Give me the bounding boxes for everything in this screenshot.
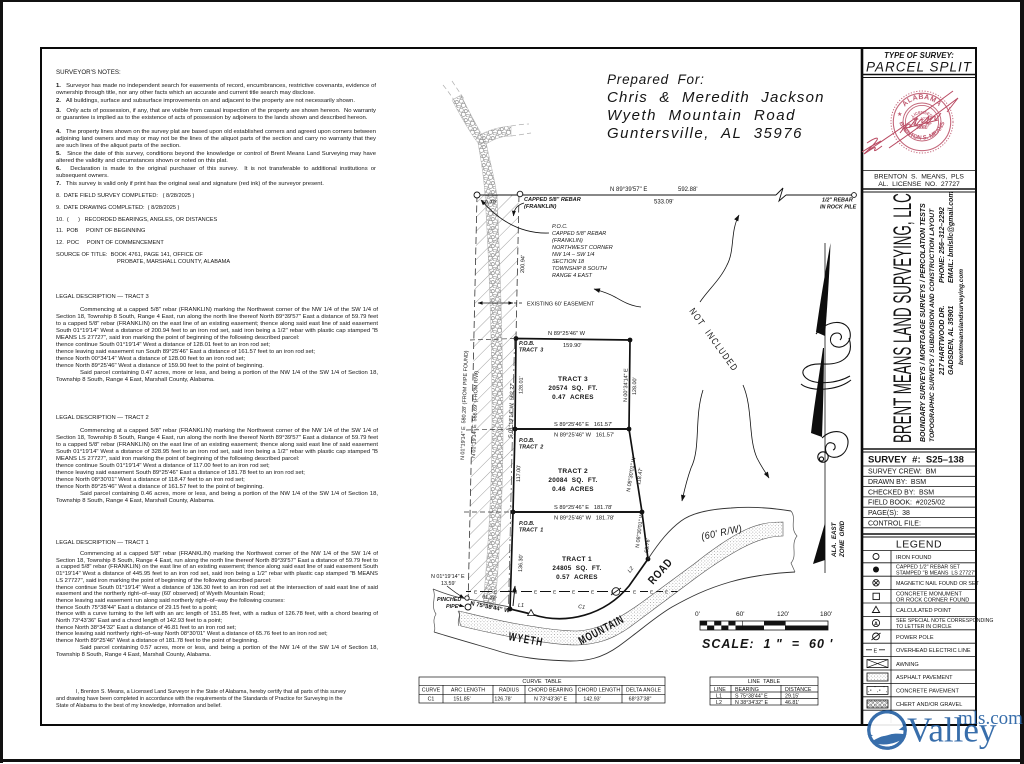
svg-text:592.88': 592.88' bbox=[678, 187, 698, 193]
svg-text:117.00': 117.00' bbox=[516, 465, 522, 482]
svg-text:BOUNDARY SURVEYS / MORTGAGE SU: BOUNDARY SURVEYS / MORTGAGE SURVEYS / PE… bbox=[920, 203, 927, 442]
svg-text:128.00': 128.00' bbox=[632, 377, 638, 395]
svg-text:TO LETTER IN CIRCLE: TO LETTER IN CIRCLE bbox=[896, 624, 952, 630]
svg-text:N 01°19'14" E: N 01°19'14" E bbox=[431, 574, 465, 580]
svg-text:E: E bbox=[494, 590, 497, 596]
svg-text:PARCEL SPLIT: PARCEL SPLIT bbox=[866, 60, 973, 75]
svg-text:46.81': 46.81' bbox=[785, 700, 799, 706]
svg-text:C1: C1 bbox=[428, 697, 435, 703]
svg-text:MAGNETIC NAIL FOUND OR SET: MAGNETIC NAIL FOUND OR SET bbox=[896, 581, 979, 587]
svg-text:TRACT 2: TRACT 2 bbox=[519, 445, 543, 451]
svg-text:68°37'38": 68°37'38" bbox=[629, 697, 652, 703]
svg-text:N 89°25'46" W: N 89°25'46" W bbox=[548, 331, 586, 337]
svg-text:SCALE: 1 " = 60 ': SCALE: 1 " = 60 ' bbox=[702, 637, 833, 651]
svg-text:29.15': 29.15' bbox=[785, 694, 799, 700]
svg-text:20574 SQ. FT.: 20574 SQ. FT. bbox=[548, 385, 597, 392]
svg-text:0.47 ACRES: 0.47 ACRES bbox=[552, 394, 594, 401]
svg-text:PIPE: PIPE bbox=[446, 604, 459, 610]
svg-text:EMAIL: bmlsllc@gmail.com: EMAIL: bmlsllc@gmail.com bbox=[948, 191, 955, 283]
svg-text:0.57 ACRES: 0.57 ACRES bbox=[556, 574, 598, 581]
svg-text:GADSDEN, AL 35901: GADSDEN, AL 35901 bbox=[948, 306, 955, 375]
svg-text:P.O.B.: P.O.B. bbox=[519, 521, 535, 527]
svg-text:PINCHED: PINCHED bbox=[437, 597, 461, 603]
svg-text:AL. LICENSE NO. 27727: AL. LICENSE NO. 27727 bbox=[878, 181, 960, 188]
svg-text:S 75°38'44" E: S 75°38'44" E bbox=[735, 694, 768, 700]
svg-text:P.O.C.: P.O.C. bbox=[552, 224, 568, 230]
svg-text:SECTION 18: SECTION 18 bbox=[552, 259, 585, 265]
svg-text:128.01': 128.01' bbox=[519, 376, 525, 394]
svg-text:L2: L2 bbox=[716, 700, 722, 706]
svg-text:533.09': 533.09' bbox=[654, 200, 674, 206]
svg-text:159.90': 159.90' bbox=[563, 343, 581, 349]
svg-text:N 00°34'14" E: N 00°34'14" E bbox=[623, 368, 630, 402]
svg-text:N 89°25'46" W 161.57': N 89°25'46" W 161.57' bbox=[554, 433, 614, 439]
svg-text:CURVE TABLE: CURVE TABLE bbox=[522, 679, 562, 685]
svg-text:65.76': 65.76' bbox=[644, 538, 652, 553]
svg-text:E: E bbox=[633, 590, 636, 596]
svg-text:(FRANKLIN): (FRANKLIN) bbox=[524, 204, 556, 210]
svg-text:TOWNSHIP 8 SOUTH: TOWNSHIP 8 SOUTH bbox=[552, 266, 607, 272]
svg-text:E: E bbox=[534, 590, 537, 596]
svg-text:BRENT MEANS LAND SURVEYING, LL: BRENT MEANS LAND SURVEYING, LLC bbox=[890, 193, 917, 443]
svg-text:NORTHWEST CORNER: NORTHWEST CORNER bbox=[552, 245, 613, 251]
svg-text:DELTA ANGLE: DELTA ANGLE bbox=[626, 688, 662, 694]
svg-text:DISTANCE: DISTANCE bbox=[785, 687, 812, 693]
svg-text:L1: L1 bbox=[518, 603, 524, 609]
svg-text:LINE: LINE bbox=[714, 687, 726, 693]
svg-text:126.78': 126.78' bbox=[494, 697, 511, 703]
svg-text:OVERHEAD ELECTRIC LINE: OVERHEAD ELECTRIC LINE bbox=[896, 648, 971, 654]
svg-text:0': 0' bbox=[695, 611, 700, 618]
svg-text:mls.com: mls.com bbox=[958, 708, 1023, 729]
svg-text:NW 1/4 – SW 1/4: NW 1/4 – SW 1/4 bbox=[552, 252, 595, 258]
svg-text:120': 120' bbox=[777, 611, 789, 618]
svg-text:IRON FOUND: IRON FOUND bbox=[896, 555, 931, 561]
svg-text:L1: L1 bbox=[716, 694, 722, 700]
svg-text:TRACT 3: TRACT 3 bbox=[519, 348, 543, 354]
svg-text:60': 60' bbox=[736, 611, 744, 618]
svg-text:EXISTING 60' EASEMENT: EXISTING 60' EASEMENT bbox=[527, 302, 595, 308]
svg-text:24805 SQ. FT.: 24805 SQ. FT. bbox=[552, 565, 601, 572]
svg-text:ALA. EAST: ALA. EAST bbox=[831, 521, 838, 558]
svg-text:P.O.B.: P.O.B. bbox=[519, 341, 535, 347]
svg-text:RADIUS: RADIUS bbox=[499, 688, 519, 694]
svg-text:P.O.B.: P.O.B. bbox=[519, 438, 535, 444]
svg-text:200.94': 200.94' bbox=[520, 255, 527, 273]
svg-text:TRACT 1: TRACT 1 bbox=[519, 528, 543, 534]
svg-text:CHORD BEARING: CHORD BEARING bbox=[528, 688, 573, 694]
svg-text:brentmeanslandsurveying.com: brentmeanslandsurveying.com bbox=[958, 269, 965, 365]
svg-text:136.30': 136.30' bbox=[518, 554, 525, 572]
svg-text:E: E bbox=[591, 590, 594, 596]
svg-text:CALCULATED POINT: CALCULATED POINT bbox=[896, 608, 952, 614]
svg-text:STAMPED "B MEANS LS 27727": STAMPED "B MEANS LS 27727" bbox=[896, 571, 976, 577]
svg-text:(FRANKLIN): (FRANKLIN) bbox=[552, 238, 583, 244]
svg-text:NOT INCLUDED: NOT INCLUDED bbox=[687, 306, 741, 374]
svg-text:TRACT 1: TRACT 1 bbox=[562, 556, 592, 563]
svg-text:PAGE(S): 38: PAGE(S): 38 bbox=[868, 510, 910, 517]
svg-text:FIELD BOOK: #2025/02: FIELD BOOK: #2025/02 bbox=[868, 500, 945, 507]
svg-text:ARC LENGTH: ARC LENGTH bbox=[451, 688, 485, 694]
svg-text:N 01°19'14" E 580.28' (FROM P: N 01°19'14" E 580.28' (FROM PIPE FOUND) bbox=[460, 350, 470, 460]
svg-text:ALABAMA: ALABAMA bbox=[901, 94, 942, 108]
svg-text:BEARING: BEARING bbox=[735, 687, 759, 693]
svg-text:59.79': 59.79' bbox=[482, 200, 497, 206]
svg-text:E: E bbox=[553, 590, 556, 596]
svg-text:13.59': 13.59' bbox=[441, 581, 456, 587]
svg-text:IN ROCK PILE: IN ROCK PILE bbox=[820, 205, 857, 211]
svg-text:RANGE 4 EAST: RANGE 4 EAST bbox=[552, 273, 593, 279]
svg-text:142.93': 142.93' bbox=[583, 697, 600, 703]
svg-text:C1: C1 bbox=[578, 604, 586, 611]
svg-text:L2: L2 bbox=[627, 566, 635, 574]
svg-text:E: E bbox=[874, 648, 878, 654]
svg-text:N 89°39'57" E: N 89°39'57" E bbox=[610, 187, 647, 193]
svg-text:POWER POLE: POWER POLE bbox=[896, 635, 934, 641]
svg-text:E: E bbox=[474, 589, 477, 595]
svg-text:A: A bbox=[874, 621, 878, 627]
svg-text:CURVE: CURVE bbox=[422, 688, 441, 694]
svg-text:217 HARTWOOD DR.: 217 HARTWOOD DR. bbox=[939, 305, 946, 376]
svg-text:S 89°25'46" E 161.57': S 89°25'46" E 161.57' bbox=[554, 422, 612, 428]
svg-text:CHORD LENGTH: CHORD LENGTH bbox=[578, 688, 621, 694]
svg-text:0.46 ACRES: 0.46 ACRES bbox=[552, 486, 594, 493]
svg-text:CONTROL FILE:: CONTROL FILE: bbox=[868, 520, 921, 527]
svg-text:LINE TABLE: LINE TABLE bbox=[748, 679, 781, 685]
svg-text:N 73°43'36" E: N 73°43'36" E bbox=[534, 697, 567, 703]
svg-text:CAPPED 5/8" REBAR: CAPPED 5/8" REBAR bbox=[524, 197, 581, 203]
svg-text:TRACT 2: TRACT 2 bbox=[558, 468, 588, 475]
svg-text:AWNING: AWNING bbox=[896, 662, 919, 668]
svg-text:151.85': 151.85' bbox=[453, 697, 470, 703]
svg-text:118.47': 118.47' bbox=[636, 467, 645, 485]
svg-text:★: ★ bbox=[897, 111, 902, 118]
svg-text:PHONE: 256–312–2292: PHONE: 256–312–2292 bbox=[939, 207, 946, 283]
svg-text:CHECKED BY: BSM: CHECKED BY: BSM bbox=[868, 489, 934, 496]
svg-text:N 89°25'46" W 181.78': N 89°25'46" W 181.78' bbox=[554, 516, 614, 522]
svg-text:TOPOGRAPHIC SURVEYS / SUBDIVIS: TOPOGRAPHIC SURVEYS / SUBDIVISION AND CO… bbox=[929, 208, 936, 442]
svg-text:BRENTON S. MEANS, PLS: BRENTON S. MEANS, PLS bbox=[874, 174, 964, 181]
svg-text:E: E bbox=[572, 590, 575, 596]
svg-text:N 38°34'32" E: N 38°34'32" E bbox=[735, 700, 768, 706]
svg-text:ZONE GRID: ZONE GRID bbox=[839, 520, 846, 558]
svg-text:S 89°25'46" E 181.78': S 89°25'46" E 181.78' bbox=[554, 505, 612, 511]
svg-text:LEGEND: LEGEND bbox=[896, 539, 942, 551]
svg-text:180': 180' bbox=[820, 611, 832, 618]
svg-text:TRACT 3: TRACT 3 bbox=[558, 376, 588, 383]
svg-text:SURVEY CREW: BM: SURVEY CREW: BM bbox=[868, 469, 936, 476]
svg-text:20084 SQ. FT.: 20084 SQ. FT. bbox=[548, 477, 597, 484]
svg-text:1/2" REBAR: 1/2" REBAR bbox=[822, 198, 853, 204]
svg-text:CAPPED 5/8" REBAR: CAPPED 5/8" REBAR bbox=[552, 231, 606, 237]
svg-text:SURVEY #: S25–138: SURVEY #: S25–138 bbox=[868, 455, 964, 466]
svg-text:DRAWN BY: BSM: DRAWN BY: BSM bbox=[868, 479, 926, 486]
